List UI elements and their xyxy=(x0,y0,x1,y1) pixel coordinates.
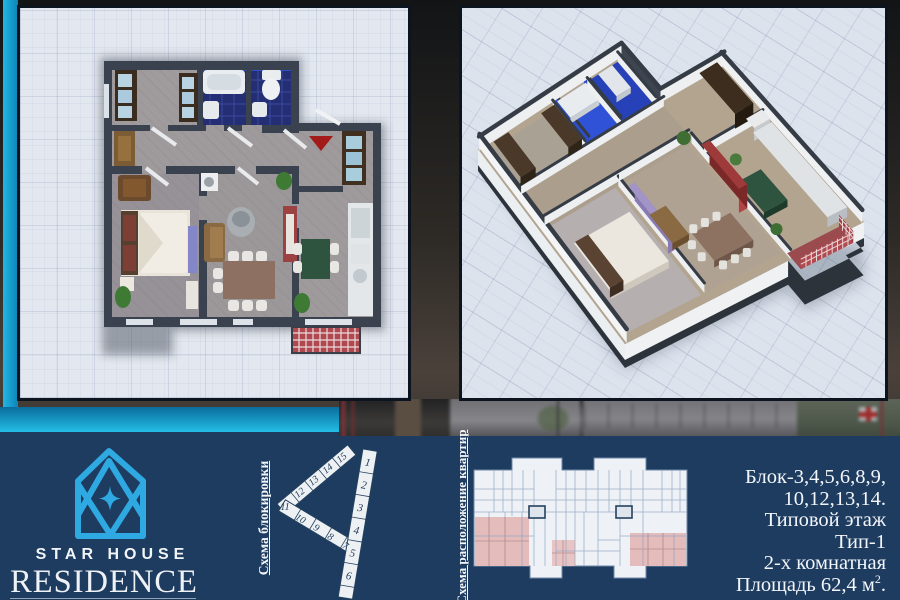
svg-text:11: 11 xyxy=(280,502,289,513)
